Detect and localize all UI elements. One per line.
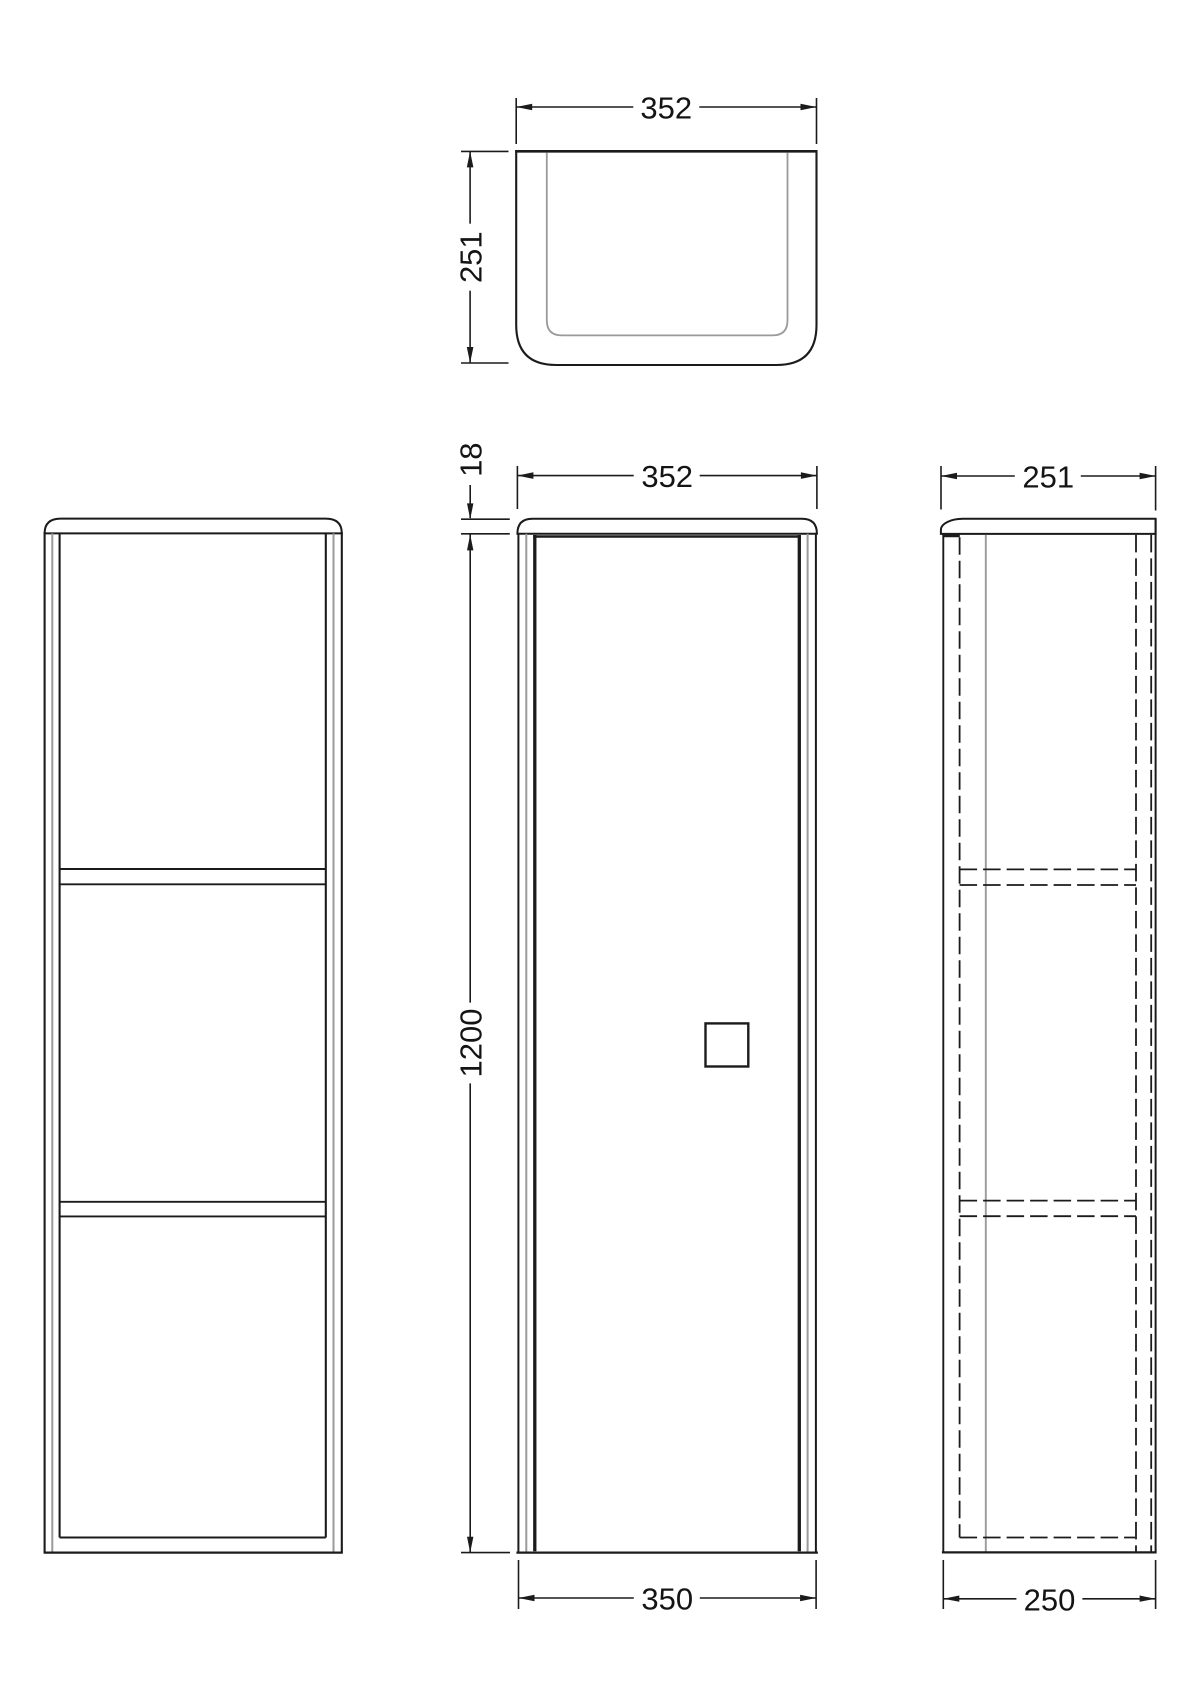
svg-text:352: 352 [641, 459, 693, 494]
svg-text:352: 352 [640, 91, 692, 126]
svg-text:251: 251 [1022, 460, 1074, 495]
svg-text:350: 350 [641, 1582, 693, 1617]
svg-text:18: 18 [454, 442, 489, 476]
svg-text:251: 251 [454, 231, 489, 283]
svg-text:1200: 1200 [454, 1009, 489, 1078]
svg-text:250: 250 [1024, 1582, 1076, 1617]
